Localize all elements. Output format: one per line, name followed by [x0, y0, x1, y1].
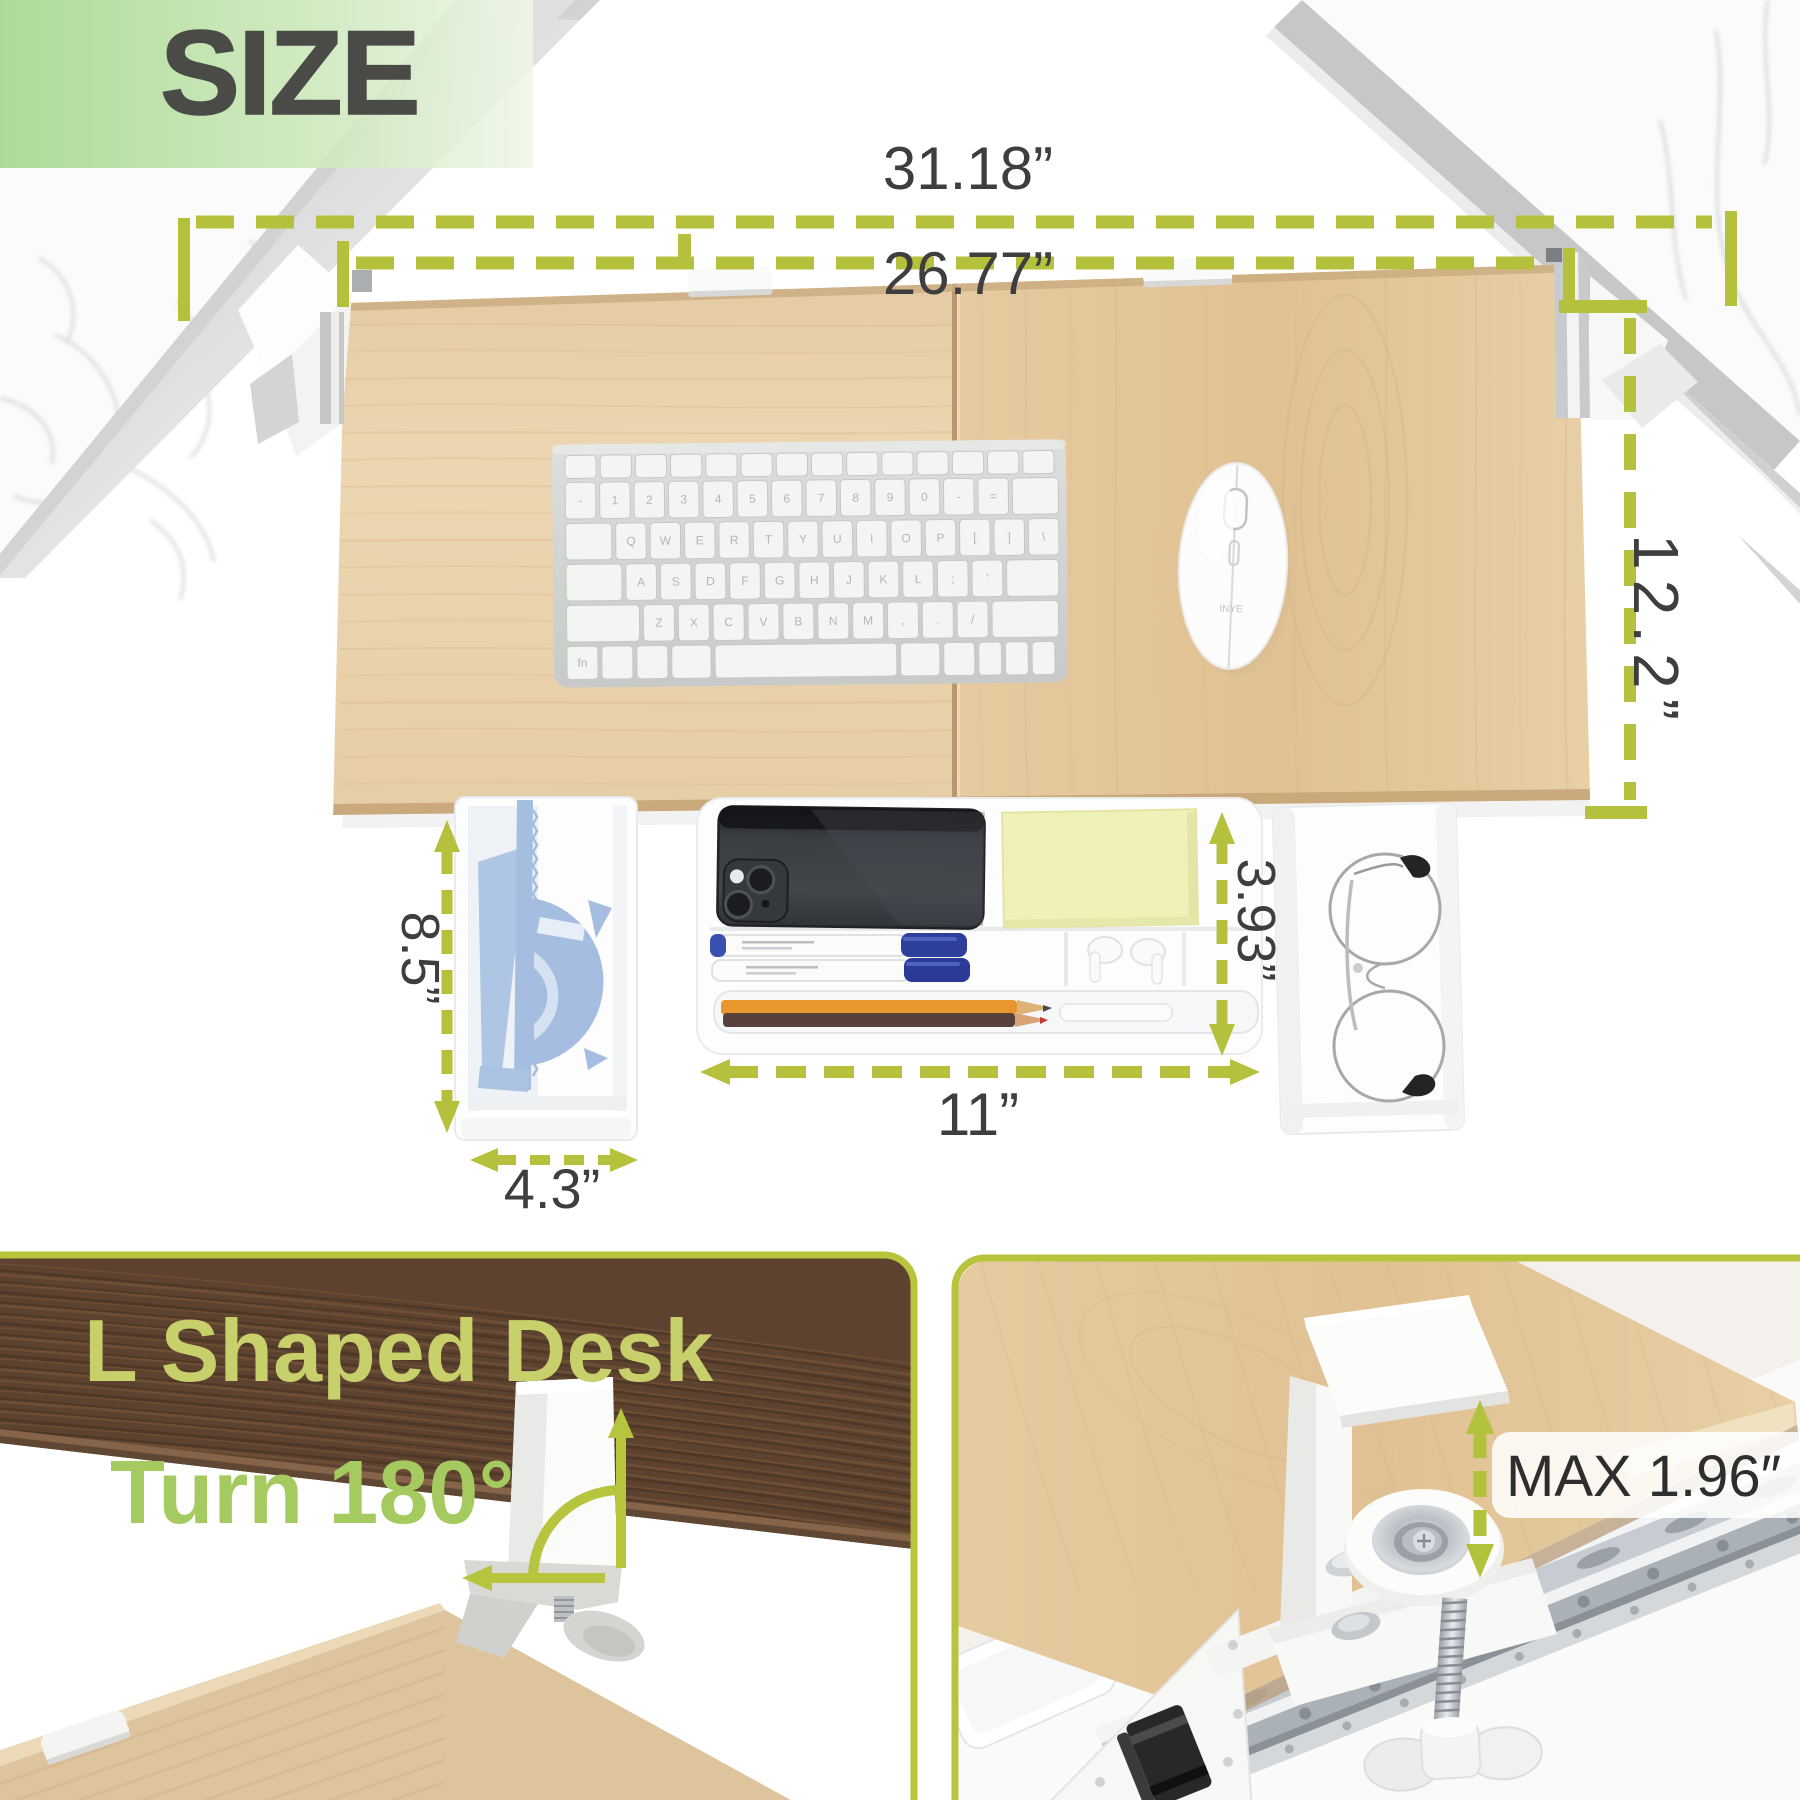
svg-text:0: 0	[921, 490, 928, 504]
svg-text:T: T	[765, 533, 773, 547]
svg-text:Y: Y	[799, 532, 807, 546]
svg-text:;: ;	[951, 572, 954, 586]
svg-text:4.3”: 4.3”	[504, 1157, 601, 1220]
svg-text:O: O	[901, 531, 910, 545]
svg-text:SIZE: SIZE	[160, 6, 419, 140]
svg-text:12.2”: 12.2”	[1620, 534, 1692, 730]
svg-text:11”: 11”	[937, 1081, 1019, 1148]
svg-text:A: A	[637, 575, 645, 589]
svg-text:,: ,	[901, 613, 904, 627]
svg-text:.: .	[936, 613, 939, 627]
svg-text:L: L	[915, 572, 922, 586]
svg-text:-: -	[957, 490, 961, 504]
svg-text:31.18”: 31.18”	[883, 135, 1053, 202]
svg-text:F: F	[741, 574, 748, 588]
svg-text:V: V	[759, 615, 767, 629]
svg-text:D: D	[706, 574, 715, 588]
svg-text:INYE: INYE	[1219, 603, 1243, 615]
svg-text:C: C	[724, 615, 733, 629]
svg-text:1: 1	[612, 493, 619, 507]
svg-text:-: -	[578, 494, 582, 508]
svg-text:S: S	[672, 575, 680, 589]
svg-text:Turn 180°: Turn 180°	[110, 1443, 514, 1543]
svg-text:R: R	[730, 533, 739, 547]
svg-text:3.93”: 3.93”	[1226, 858, 1286, 981]
svg-text:Q: Q	[626, 534, 635, 548]
svg-text:M: M	[863, 614, 873, 628]
svg-text:7: 7	[818, 491, 825, 505]
svg-text:26.77”: 26.77”	[883, 240, 1053, 307]
svg-text:=: =	[990, 489, 997, 503]
svg-text:K: K	[879, 572, 887, 586]
svg-text:8: 8	[852, 491, 859, 505]
svg-text:2: 2	[646, 493, 653, 507]
svg-text:]: ]	[1007, 530, 1010, 544]
svg-text:6: 6	[783, 491, 790, 505]
svg-text:Z: Z	[655, 616, 662, 630]
svg-text:MAX 1.96″: MAX 1.96″	[1506, 1444, 1781, 1509]
svg-text:L Shaped Desk: L Shaped Desk	[84, 1301, 714, 1400]
svg-text:3: 3	[680, 492, 687, 506]
svg-text:H: H	[810, 573, 819, 587]
svg-text:U: U	[833, 532, 842, 546]
svg-text:E: E	[696, 533, 704, 547]
svg-text:I: I	[870, 532, 873, 546]
svg-text:N: N	[829, 614, 838, 628]
svg-text:5: 5	[749, 492, 756, 506]
svg-text:': '	[986, 571, 988, 585]
svg-text:J: J	[846, 573, 852, 587]
svg-text:G: G	[775, 573, 784, 587]
svg-text:8.5”: 8.5”	[390, 911, 450, 1004]
svg-text:9: 9	[887, 490, 894, 504]
svg-text:X: X	[690, 615, 698, 629]
svg-text:B: B	[794, 614, 802, 628]
svg-text:fn: fn	[577, 656, 587, 670]
svg-text:4: 4	[715, 492, 722, 506]
svg-text:W: W	[660, 534, 672, 548]
svg-text:P: P	[936, 531, 944, 545]
